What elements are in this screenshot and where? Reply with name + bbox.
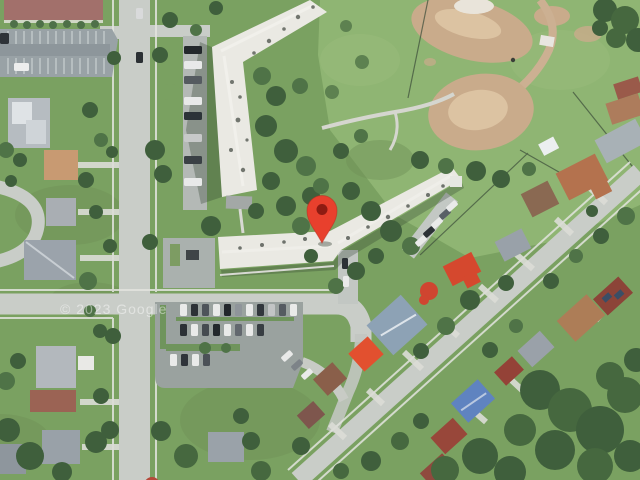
house-tan-west [44, 150, 78, 180]
parked-van [14, 63, 29, 71]
pin-inner-dot [317, 204, 328, 215]
pin-shadow [318, 241, 332, 246]
map-watermark-attribution: © 2023 Google [60, 301, 167, 317]
dumpster [186, 250, 199, 260]
satellite-map-canvas[interactable]: © 2023 Google [0, 0, 640, 480]
map-viewport[interactable]: © 2023 Google [0, 0, 640, 480]
maroon-flat-roof-building [4, 0, 103, 20]
